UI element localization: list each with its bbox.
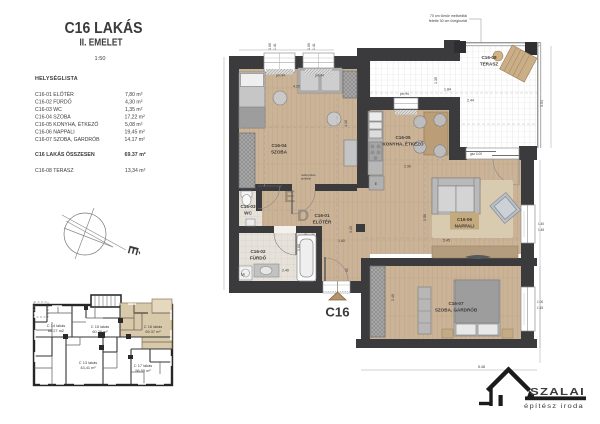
svg-text:építész iroda: építész iroda <box>524 404 584 410</box>
svg-text:1.40: 1.40 <box>538 222 544 226</box>
svg-text:68.27 m2: 68.27 m2 <box>48 328 64 333</box>
svg-text:1,35 m²: 1,35 m² <box>125 107 143 113</box>
svg-text:C16-05: C16-05 <box>395 135 411 140</box>
svg-text:3.50: 3.50 <box>423 214 427 221</box>
svg-text:D: D <box>297 206 309 225</box>
svg-text:II. EMELET: II. EMELET <box>80 37 123 49</box>
svg-text:5.45: 5.45 <box>443 239 450 243</box>
svg-text:1.60: 1.60 <box>297 244 301 251</box>
svg-text:C16-07 SZOBA, GARDRÓB: C16-07 SZOBA, GARDRÓB <box>35 136 100 143</box>
svg-text:felette 30 cm üvegkorlát: felette 30 cm üvegkorlát <box>429 19 467 23</box>
svg-text:ablakkal: ablakkal <box>301 177 311 181</box>
svg-text:C16-06: C16-06 <box>457 217 473 222</box>
svg-text:C16 LAKÁS ÖSSZESEN: C16 LAKÁS ÖSSZESEN <box>35 151 95 158</box>
svg-text:redőnytokos: redőnytokos <box>301 173 316 177</box>
svg-text:pm 94: pm 94 <box>276 74 285 78</box>
svg-text:M: M <box>241 272 245 277</box>
svg-text:2.40: 2.40 <box>282 269 289 273</box>
svg-text:3.20: 3.20 <box>349 226 353 233</box>
svg-text:C16: C16 <box>325 305 349 320</box>
svg-text:pm 94: pm 94 <box>315 74 324 78</box>
svg-text:C16-02: C16-02 <box>250 249 266 254</box>
svg-text:C16-08: C16-08 <box>481 55 497 60</box>
svg-text:TERASZ: TERASZ <box>480 62 499 67</box>
svg-text:14,17 m²: 14,17 m² <box>125 137 146 143</box>
svg-text:17,22 m²: 17,22 m² <box>125 115 146 121</box>
svg-text:56,95 m²: 56,95 m² <box>135 368 151 373</box>
svg-text:gsz 0.00: gsz 0.00 <box>470 152 482 156</box>
svg-text:60,29 m²: 60,29 m² <box>92 329 108 334</box>
svg-text:13,34 m²: 13,34 m² <box>125 168 146 174</box>
svg-text:FÜRDŐ: FÜRDŐ <box>250 255 267 261</box>
svg-text:3.54: 3.54 <box>540 100 544 107</box>
svg-text:1:50: 1:50 <box>95 56 106 62</box>
svg-text:C16-05 KONYHA, ÉTKEZŐ: C16-05 KONYHA, ÉTKEZŐ <box>35 121 98 128</box>
svg-text:ELŐTÉR: ELŐTÉR <box>313 218 332 225</box>
svg-text:C16-08 TERASZ: C16-08 TERASZ <box>35 168 73 174</box>
svg-text:pm 94: pm 94 <box>400 92 409 96</box>
svg-text:1.41: 1.41 <box>273 43 277 50</box>
svg-text:C16-01: C16-01 <box>314 213 330 218</box>
svg-text:90: 90 <box>345 268 349 272</box>
svg-text:C16-04 SZOBA: C16-04 SZOBA <box>35 115 71 121</box>
svg-text:C16-06 NAPPALI: C16-06 NAPPALI <box>35 130 75 136</box>
svg-text:1.41: 1.41 <box>312 43 316 50</box>
svg-text:SZOBA, GARDRÓB: SZOBA, GARDRÓB <box>435 306 478 313</box>
svg-text:C16-02 FÜRDŐ: C16-02 FÜRDŐ <box>35 99 72 106</box>
svg-text:69.37 m²: 69.37 m² <box>145 329 161 334</box>
svg-text:C16-03 WC: C16-03 WC <box>35 107 62 113</box>
svg-text:2.40: 2.40 <box>391 294 395 301</box>
svg-text:HELYSÉGLISTA: HELYSÉGLISTA <box>35 74 78 82</box>
svg-text:2.44: 2.44 <box>467 99 474 103</box>
svg-text:C16-01 ELŐTÉR: C16-01 ELŐTÉR <box>35 91 74 98</box>
svg-text:SZOBA: SZOBA <box>271 150 288 155</box>
svg-text:E: E <box>375 181 378 186</box>
svg-text:5.48: 5.48 <box>478 365 485 369</box>
svg-text:43,41 m²: 43,41 m² <box>80 365 96 370</box>
svg-text:5,08 m²: 5,08 m² <box>125 122 143 128</box>
svg-text:C16-04: C16-04 <box>271 143 287 148</box>
svg-text:2.90: 2.90 <box>404 165 411 169</box>
svg-text:1.00: 1.00 <box>307 43 311 50</box>
svg-text:1.00: 1.00 <box>268 43 272 50</box>
svg-text:1.60: 1.60 <box>338 239 345 243</box>
svg-text:SZALAI: SZALAI <box>530 387 585 398</box>
svg-text:KONYHA, ÉTKEZŐ: KONYHA, ÉTKEZŐ <box>382 140 424 147</box>
svg-text:C16-07: C16-07 <box>448 301 464 306</box>
svg-text:4,30 m²: 4,30 m² <box>125 100 143 106</box>
svg-text:70 cm tömör mellvédfal: 70 cm tömör mellvédfal <box>430 14 467 18</box>
svg-text:4.20: 4.20 <box>293 85 300 89</box>
svg-text:4.10: 4.10 <box>344 120 348 127</box>
svg-text:1.45: 1.45 <box>538 228 544 232</box>
svg-text:69.37 m²: 69.37 m² <box>125 152 146 158</box>
svg-text:C16 LAKÁS: C16 LAKÁS <box>65 18 143 37</box>
svg-text:1.84: 1.84 <box>444 88 451 92</box>
svg-text:NAPPALI: NAPPALI <box>455 224 475 229</box>
svg-text:7,80 m²: 7,80 m² <box>125 92 143 98</box>
svg-text:WC: WC <box>244 211 252 216</box>
svg-text:1.35: 1.35 <box>434 77 438 84</box>
svg-text:19,45 m²: 19,45 m² <box>125 130 146 136</box>
svg-text:C16-03: C16-03 <box>240 204 256 209</box>
